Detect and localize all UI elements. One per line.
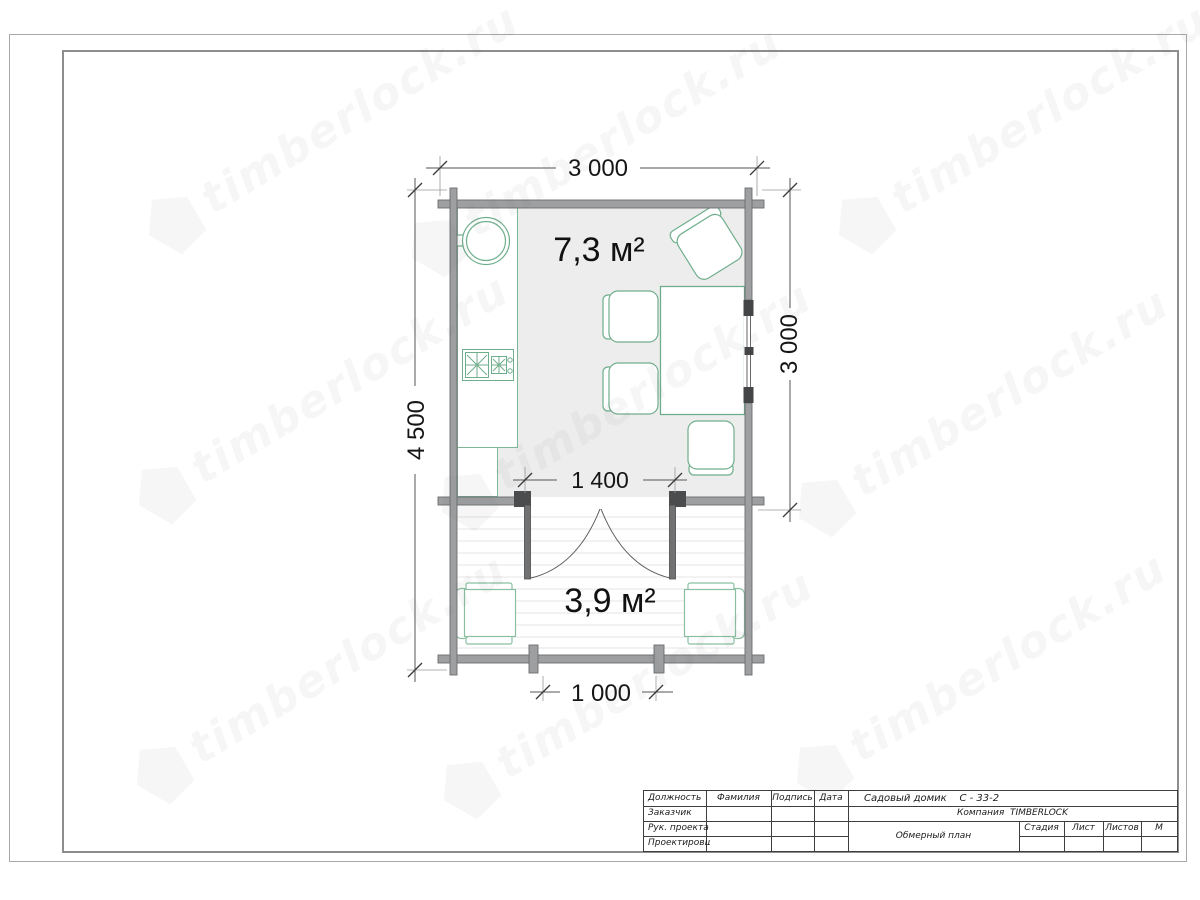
title-block: Должность Фамилия Подпись Дата Заказчик …: [643, 790, 1178, 852]
title-block-project-title: Садовый домик С - 33-2: [860, 791, 1181, 806]
dim-width-top: 3 000: [568, 155, 628, 182]
drawing-page: 3 000 4 500 3 000 1 400 1 000 7,3 м² 3,9…: [0, 0, 1200, 900]
title-block-company: Компания TIMBERLOCK: [848, 806, 1177, 821]
entrance-door: [514, 491, 686, 579]
burner-left: [466, 353, 488, 377]
floor-plan-drawing: 3 000 4 500 3 000 1 400 1 000 7,3 м² 3,9…: [0, 0, 1200, 900]
dim-height-room: 3 000: [776, 314, 803, 374]
title-block-row-designer: Проектировщик: [644, 836, 710, 851]
title-block-col-stage: Стадия: [1019, 821, 1064, 836]
terrace-armchair-left: [456, 583, 516, 644]
chair-left-upper: [603, 291, 658, 342]
burner-right: [492, 357, 506, 373]
title-block-col-sheets: Листов: [1103, 821, 1141, 836]
dim-door-opening: 1 400: [571, 467, 629, 493]
chair-bottom: [688, 421, 734, 475]
dim-height-total: 4 500: [403, 400, 430, 460]
terrace-area-label: 3,9 м²: [564, 582, 655, 620]
dim-terrace-opening: 1 000: [571, 680, 631, 707]
title-block-col-surname: Фамилия: [706, 791, 771, 806]
title-block-col-position: Должность: [644, 791, 710, 806]
stove: [463, 350, 514, 381]
terrace-armchair-right: [685, 583, 745, 644]
dining-table: [661, 287, 745, 415]
title-block-row-customer: Заказчик: [644, 806, 710, 821]
chair-left-lower: [603, 363, 658, 414]
title-block-row-project-lead: Рук. проекта: [644, 821, 710, 836]
window: [744, 300, 754, 403]
title-block-col-scale: М: [1141, 821, 1177, 836]
title-block-col-signature: Подпись: [771, 791, 814, 806]
room-area-label: 7,3 м²: [553, 231, 644, 269]
title-block-col-sheet: Лист: [1064, 821, 1103, 836]
title-block-col-date: Дата: [814, 791, 848, 806]
title-block-drawing-type: Обмерный план: [848, 821, 1019, 851]
